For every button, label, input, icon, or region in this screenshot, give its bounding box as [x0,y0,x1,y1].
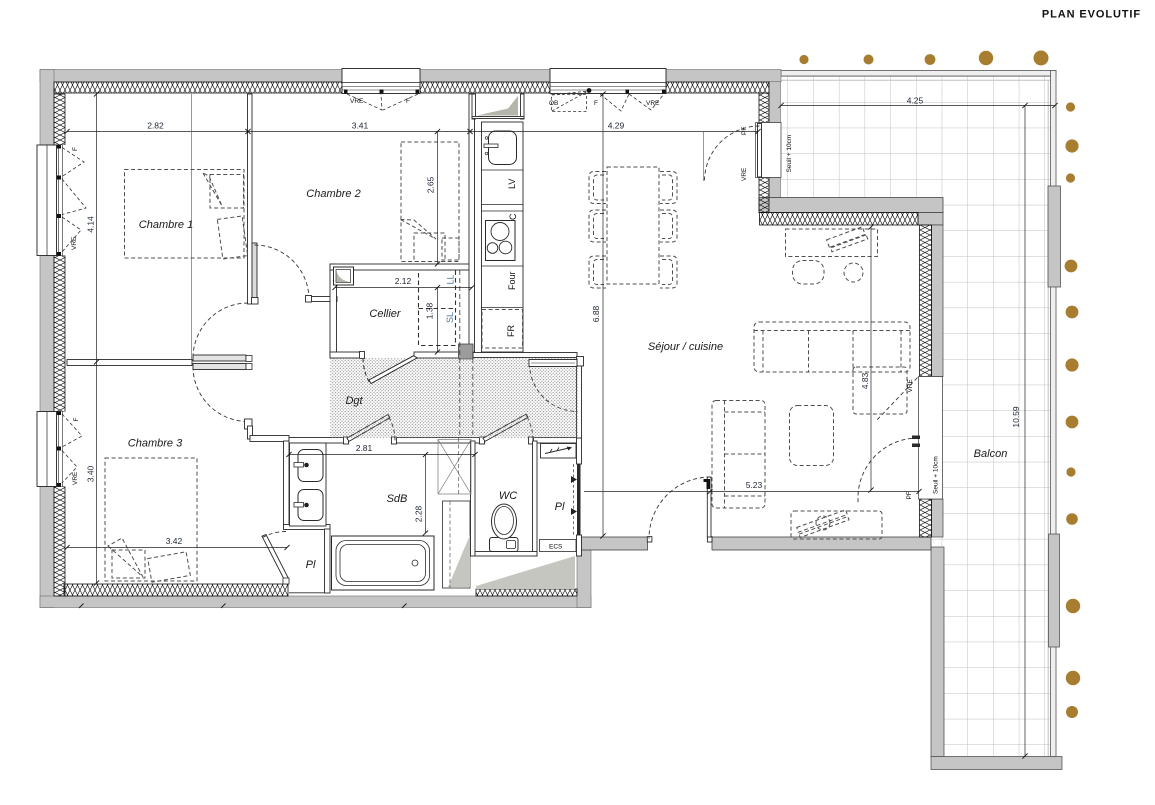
svg-text:Chambre 3: Chambre 3 [128,438,183,450]
svg-text:PF: PF [741,127,748,135]
svg-text:VRE: VRE [646,100,660,107]
svg-text:SdB: SdB [387,493,408,505]
svg-text:PF: PF [906,491,913,499]
svg-text:3.40: 3.40 [86,465,96,482]
svg-text:C: C [508,213,518,220]
svg-text:VRE: VRE [741,167,748,181]
svg-text:4.83: 4.83 [860,372,870,389]
svg-text:2.82: 2.82 [147,121,164,131]
svg-text:Pl: Pl [555,501,565,513]
svg-text:VRE: VRE [71,236,78,250]
svg-text:4.25: 4.25 [907,96,924,106]
svg-text:Séjour / cuisine: Séjour / cuisine [648,341,723,353]
svg-text:VRE: VRE [350,98,364,105]
svg-text:5.23: 5.23 [746,480,763,490]
svg-text:4.14: 4.14 [86,216,96,233]
svg-text:Chambre 1: Chambre 1 [139,219,193,231]
svg-text:Seuil + 10cm: Seuil + 10cm [933,456,940,494]
svg-text:Chambre 2: Chambre 2 [306,188,360,200]
svg-text:6.88: 6.88 [591,305,601,322]
svg-text:LV: LV [507,179,517,189]
svg-text:PLAN EVOLUTIF: PLAN EVOLUTIF [1042,9,1141,21]
svg-text:F: F [72,147,79,151]
svg-text:1.38: 1.38 [425,302,435,319]
svg-text:Four: Four [507,271,517,290]
svg-text:LL: LL [446,274,456,284]
svg-text:2.65: 2.65 [426,176,436,193]
svg-text:F: F [73,418,80,422]
svg-text:VRE: VRE [72,471,79,485]
svg-text:2.12: 2.12 [395,276,412,286]
svg-text:F: F [406,98,410,105]
svg-text:3.42: 3.42 [166,536,183,546]
svg-text:FR: FR [506,325,516,337]
svg-text:SL: SL [445,312,455,323]
svg-text:OB: OB [549,100,558,107]
svg-text:WC: WC [499,490,517,502]
svg-text:2.81: 2.81 [356,443,373,453]
svg-text:2.28: 2.28 [414,505,424,522]
svg-text:Seuil + 10cm: Seuil + 10cm [786,135,793,173]
svg-text:Pl: Pl [306,559,316,571]
svg-text:Balcon: Balcon [974,448,1008,460]
svg-text:Dgt: Dgt [345,395,363,407]
svg-text:4.29: 4.29 [608,121,625,131]
svg-text:Cellier: Cellier [369,308,402,320]
svg-text:10.59: 10.59 [1011,406,1021,428]
svg-text:F: F [594,100,598,107]
svg-text:ECS: ECS [549,544,563,551]
svg-text:VRE: VRE [907,378,914,392]
svg-text:3.41: 3.41 [352,121,369,131]
